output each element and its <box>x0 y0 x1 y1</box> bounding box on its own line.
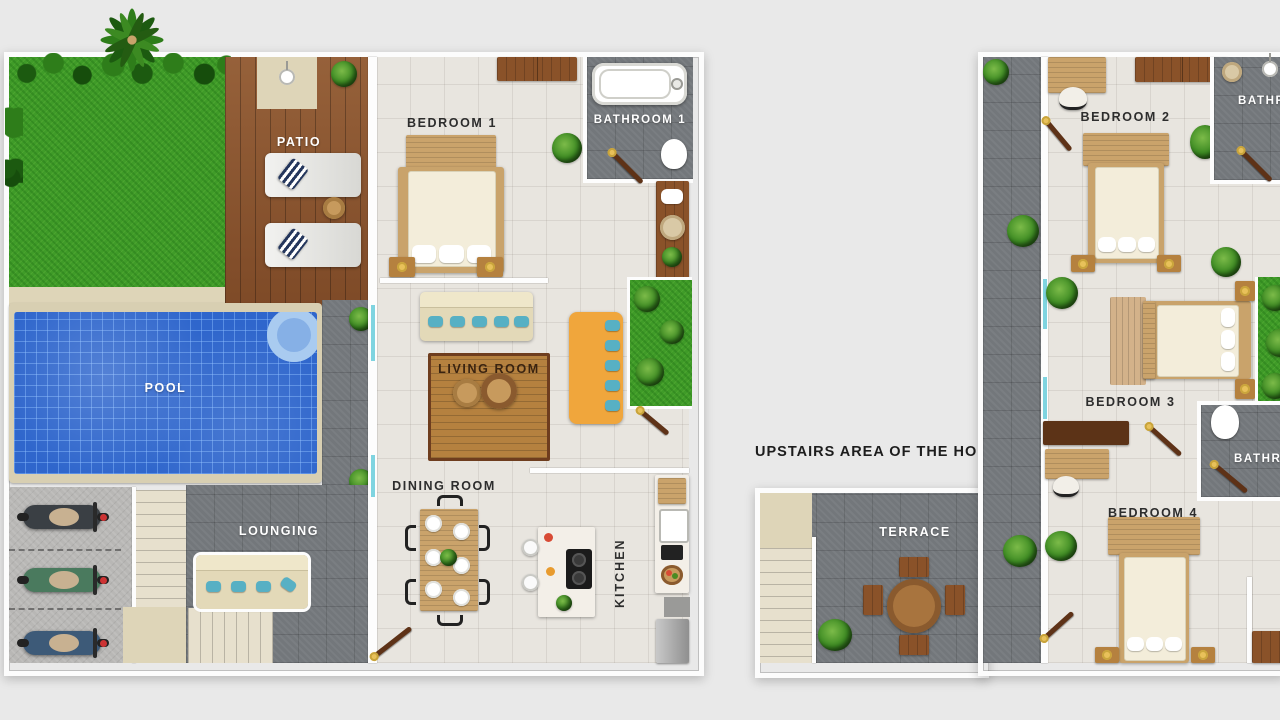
bed-pillow <box>1221 308 1235 327</box>
lounging-sofa <box>196 555 308 609</box>
sun-lounger <box>265 153 361 197</box>
stairs-landing <box>123 607 186 663</box>
bathroom1-label: BATHROOM 1 <box>587 114 693 126</box>
nightstand <box>1071 255 1095 272</box>
bed-headboard <box>1143 301 1155 379</box>
bathroom3-label: BATHROOM <box>1234 453 1280 465</box>
bathroom1: BATHROOM 1 <box>583 57 693 183</box>
towels <box>661 189 683 204</box>
dining-table <box>420 509 478 611</box>
dining-chair <box>405 525 416 551</box>
bedroom4-plant <box>1045 531 1077 561</box>
terrace-label: TERRACE <box>855 525 975 539</box>
wardrobe <box>1252 631 1280 663</box>
bathroom3: BATHROOM <box>1197 401 1280 501</box>
scooter-black <box>17 500 109 534</box>
corridor-plant <box>983 59 1009 85</box>
kitchen-stool <box>522 574 539 591</box>
dining-chair <box>405 579 416 605</box>
terrace-chair <box>945 585 965 615</box>
potted-plant <box>331 61 357 87</box>
bed-pillow <box>1221 330 1235 349</box>
stairs-flight <box>136 490 186 607</box>
bathroom2-door <box>1238 148 1273 183</box>
nightstand <box>1095 647 1119 663</box>
toilet-icon <box>1211 405 1239 439</box>
upper-floor-plan: BEDROOM 2 BATHROOM BEDROOM 3 BATHROOM BE… <box>978 52 1280 676</box>
dining-room-label: DINING ROOM <box>379 479 509 493</box>
desk-chair <box>1053 476 1079 497</box>
garden-lawn <box>9 57 227 305</box>
scooter-navy <box>17 626 109 660</box>
window <box>371 455 375 497</box>
bedroom2-plant <box>1211 247 1241 277</box>
bed-pillow <box>1165 637 1182 651</box>
patio-label: PATIO <box>225 135 373 149</box>
bed-pillow <box>1138 237 1155 252</box>
shrub-border-left <box>5 67 23 237</box>
bedroom3-rug <box>1110 297 1146 385</box>
window <box>371 305 375 361</box>
wall-bedroom1 <box>380 278 548 283</box>
divider-label: UPSTAIRS AREA OF THE HOUSE <box>755 444 971 460</box>
bed-headboard <box>1108 517 1200 555</box>
daybed-orange <box>569 312 623 424</box>
sun-lounger <box>265 223 361 267</box>
nightstand <box>477 257 503 277</box>
dining-chair <box>437 495 463 506</box>
kitchen-island <box>538 527 595 617</box>
bed-pillow <box>439 245 464 263</box>
kitchen-label: KITCHEN <box>613 525 627 621</box>
terrace-chair <box>899 557 929 577</box>
bathroom2: BATHROOM <box>1210 57 1280 184</box>
palm-tree-icon <box>97 5 167 75</box>
bedroom1-label: BEDROOM 1 <box>392 116 512 130</box>
courtyard-garden <box>627 277 692 409</box>
console-table <box>1043 421 1129 445</box>
round-basin-icon <box>1222 62 1242 82</box>
coffee-table <box>481 373 517 409</box>
cutting-board <box>658 478 686 504</box>
bed-pillow <box>1221 352 1235 371</box>
corridor-plant <box>1003 535 1037 567</box>
bed-pillow <box>1118 237 1136 252</box>
bed-headboard <box>1083 133 1169 166</box>
stairs-wall <box>812 537 816 663</box>
terrace-chair <box>863 585 883 615</box>
bathroom2-label: BATHROOM <box>1238 95 1280 107</box>
round-sink-icon <box>660 215 685 240</box>
nightstand <box>389 257 415 277</box>
bedroom3-label: BEDROOM 3 <box>1068 395 1193 409</box>
living-sofa <box>420 292 533 341</box>
coffee-table <box>453 379 481 407</box>
kitchen-counter <box>655 475 689 593</box>
bathroom1-door <box>609 150 644 185</box>
wardrobe <box>497 57 577 81</box>
wall-kitchen <box>530 468 689 473</box>
parking-divider <box>9 608 121 610</box>
nightstand <box>1235 379 1255 399</box>
parking-divider <box>9 549 121 551</box>
bathtub-icon <box>592 63 687 105</box>
bed-pillow <box>1146 637 1163 651</box>
bed-pillow <box>412 245 436 263</box>
outdoor-shower-icon <box>279 69 295 85</box>
bedroom2-label: BEDROOM 2 <box>1063 110 1188 124</box>
patio-side-table <box>323 197 345 219</box>
pool-label: POOL <box>14 381 317 395</box>
balcony-corridor <box>983 57 1041 663</box>
cooktop-icon <box>566 549 592 589</box>
desk <box>1045 449 1109 479</box>
vertical-garden <box>1255 277 1280 407</box>
bedroom3-plant <box>1046 277 1078 309</box>
desk-chair <box>1059 87 1087 110</box>
terrace-table <box>887 579 941 633</box>
living-rug: LIVING ROOM <box>428 353 550 461</box>
dining-chair <box>479 525 490 551</box>
window <box>1043 377 1047 419</box>
fruit-bowl <box>661 565 683 585</box>
terrace-chair <box>899 635 929 655</box>
espresso-machine <box>661 545 683 560</box>
nightstand <box>1191 647 1215 663</box>
bathroom3-door <box>1211 462 1248 494</box>
nightstand <box>1235 281 1255 301</box>
scooter-green <box>17 563 109 597</box>
terrace-wing: TERRACE <box>755 488 989 678</box>
dining-chair <box>479 579 490 605</box>
shower-icon <box>1262 61 1278 77</box>
bedroom1-plant <box>552 133 582 163</box>
corridor-plant <box>1007 215 1039 247</box>
wall-corridor <box>1041 57 1048 663</box>
nightstand <box>1157 255 1181 272</box>
stairs-landing <box>760 493 812 548</box>
toilet-icon <box>661 139 687 169</box>
vanity-plant <box>662 247 682 267</box>
bed-headboard <box>406 135 496 168</box>
dining-chair <box>437 615 463 626</box>
bed-pillow <box>1127 637 1144 651</box>
fridge-icon <box>656 619 689 663</box>
stairs-flight <box>760 548 812 663</box>
lounging-label: LOUNGING <box>209 524 349 538</box>
terrace-plant <box>818 619 852 651</box>
floor-mat <box>664 597 690 617</box>
bed-pillow <box>1098 237 1116 252</box>
ground-floor-plan: PATIO POOL LOUNGING BE <box>4 52 704 676</box>
stairs-flight <box>188 608 273 663</box>
pool-steps <box>267 312 317 362</box>
kitchen-stool <box>522 539 539 556</box>
kitchen-sink-icon <box>659 509 689 543</box>
floorplan-page: { "page": { "background": "#e9e9e9" }, "… <box>0 0 1280 720</box>
living-room-label: LIVING ROOM <box>431 362 547 376</box>
